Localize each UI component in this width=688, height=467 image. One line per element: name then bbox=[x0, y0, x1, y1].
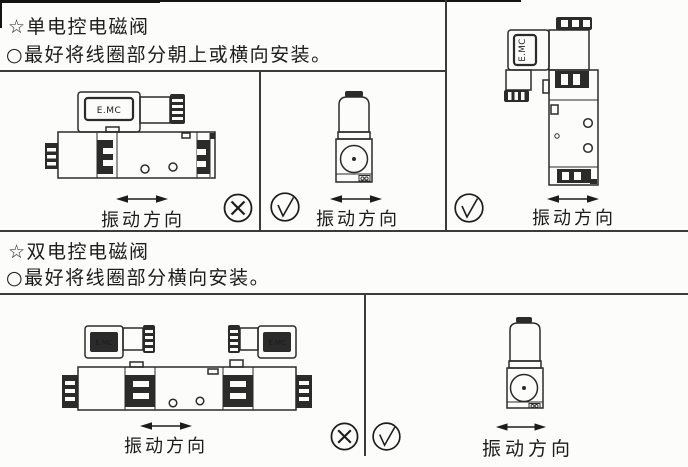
vibration-direction-label: 振动方向 bbox=[482, 434, 574, 461]
double-valve-vertical-drawing bbox=[505, 316, 545, 414]
brand-label: E.MC bbox=[95, 339, 113, 347]
vibration-arrow-icon bbox=[137, 419, 195, 433]
single-valve-side-drawing: E.MC bbox=[500, 15, 602, 188]
vibration-direction-label: 振动方向 bbox=[124, 432, 208, 458]
brand-label: E.MC bbox=[97, 106, 122, 116]
single-section-title: ☆单电控电磁阀 bbox=[8, 12, 150, 39]
single-section-note: ○最好将线圈部分朝上或横向安装。 bbox=[6, 40, 332, 67]
divider-single-panel1-2 bbox=[259, 70, 261, 232]
divider-under-double-title bbox=[0, 293, 688, 295]
divider-single-panel2-3 bbox=[445, 0, 447, 232]
manual-page: ☆单电控电磁阀 ○最好将线圈部分朝上或横向安装。 ☆双电控电磁阀 ○最好将线圈部… bbox=[0, 0, 688, 467]
double-section-title: ☆双电控电磁阀 bbox=[8, 237, 150, 264]
divider-under-single-title bbox=[0, 70, 446, 72]
cross-circle-icon bbox=[329, 421, 360, 452]
vibration-arrow-icon bbox=[328, 192, 384, 206]
vibration-direction-label: 振动方向 bbox=[316, 205, 400, 231]
check-circle-icon bbox=[269, 191, 301, 223]
divider-double-panel1-2 bbox=[364, 295, 366, 456]
single-valve-horizontal-drawing: E.MC bbox=[40, 88, 220, 183]
scan-artifact-left-edge bbox=[0, 0, 2, 28]
vibration-direction-label: 振动方向 bbox=[101, 206, 185, 232]
check-circle-icon bbox=[371, 421, 402, 452]
brand-label: E.MC bbox=[268, 339, 286, 347]
double-valve-horizontal-drawing: E.MC E.MC bbox=[60, 318, 315, 416]
vibration-direction-label: 振动方向 bbox=[532, 204, 616, 230]
brand-label: E.MC bbox=[518, 38, 528, 61]
vibration-arrow-icon bbox=[114, 192, 170, 206]
check-circle-icon bbox=[453, 192, 485, 224]
cross-circle-icon bbox=[222, 192, 254, 224]
double-section-note: ○最好将线圈部分横向安装。 bbox=[6, 263, 270, 290]
single-valve-vertical-drawing bbox=[333, 89, 375, 185]
vibration-arrow-icon bbox=[494, 420, 548, 434]
scan-artifact-top-thick bbox=[0, 0, 160, 3]
